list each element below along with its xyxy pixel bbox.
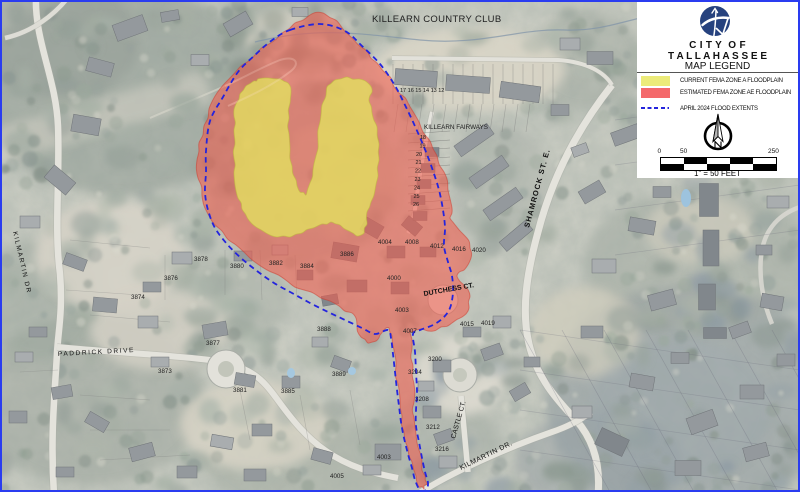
svg-text:4000: 4000	[387, 275, 401, 282]
svg-text:26: 26	[413, 202, 419, 208]
svg-text:4012: 4012	[430, 243, 444, 250]
svg-text:3889: 3889	[332, 371, 346, 378]
svg-text:KILLEARN FAIRWAYS: KILLEARN FAIRWAYS	[424, 124, 488, 131]
svg-text:23: 23	[415, 177, 421, 183]
svg-text:4005: 4005	[330, 473, 344, 480]
svg-text:3873: 3873	[158, 368, 172, 375]
svg-text:18: 18	[420, 135, 426, 141]
svg-text:3881: 3881	[233, 387, 247, 394]
svg-text:3888: 3888	[317, 326, 331, 333]
svg-text:3208: 3208	[415, 396, 429, 403]
svg-text:KILLEARN COUNTRY CLUB: KILLEARN COUNTRY CLUB	[372, 14, 501, 25]
svg-text:20: 20	[416, 152, 422, 158]
svg-text:3200: 3200	[428, 356, 442, 363]
svg-text:3216: 3216	[435, 446, 449, 453]
svg-text:25: 25	[414, 194, 420, 200]
svg-text:4008: 4008	[405, 239, 419, 246]
svg-text:22: 22	[415, 169, 421, 175]
svg-text:4019: 4019	[481, 320, 495, 327]
svg-text:24: 24	[414, 185, 420, 191]
svg-text:3204: 3204	[408, 369, 422, 376]
svg-text:4020: 4020	[472, 247, 486, 254]
svg-text:19: 19	[420, 143, 426, 149]
svg-text:4004: 4004	[378, 239, 392, 246]
svg-text:4003: 4003	[377, 454, 391, 461]
svg-text:3880: 3880	[230, 263, 244, 270]
svg-text:17 16 15 14 13 12: 17 16 15 14 13 12	[400, 88, 444, 94]
svg-text:4003: 4003	[395, 307, 409, 314]
svg-text:3876: 3876	[164, 275, 178, 282]
svg-text:21: 21	[416, 160, 422, 166]
svg-text:4007: 4007	[403, 328, 417, 335]
svg-text:3886: 3886	[340, 251, 354, 258]
svg-text:3212: 3212	[426, 424, 440, 431]
svg-text:4015: 4015	[460, 321, 474, 328]
svg-text:3878: 3878	[194, 256, 208, 263]
svg-text:3882: 3882	[269, 260, 283, 267]
svg-text:3877: 3877	[206, 340, 220, 347]
svg-text:3884: 3884	[300, 263, 314, 270]
svg-text:3874: 3874	[131, 294, 145, 301]
svg-text:3885: 3885	[281, 388, 295, 395]
svg-text:4016: 4016	[452, 246, 466, 253]
